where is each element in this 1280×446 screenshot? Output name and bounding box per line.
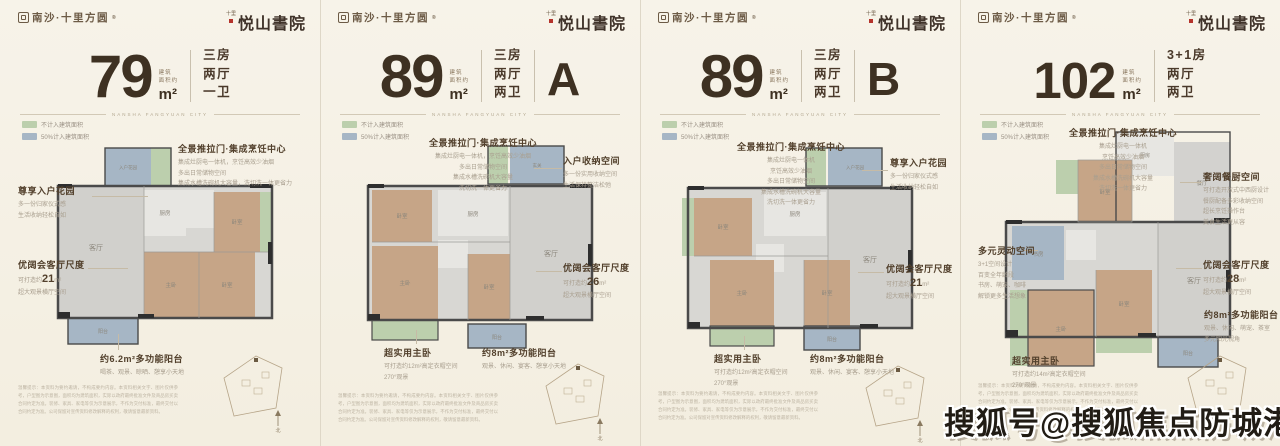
divider-line bbox=[980, 114, 1066, 115]
area-legend: 不计入建筑面积 50%计入建筑面积 bbox=[342, 120, 409, 141]
registered-mark: ® bbox=[752, 15, 757, 21]
divider-caption: NANSHA FANGYUAN CITY bbox=[752, 112, 848, 117]
unit-card-102: 南沙·十里方圆 ® 十里 悦山書院 102 建筑 面积约 m² 3+1房 两厅 … bbox=[960, 0, 1280, 446]
callout-lines: 观景、休闲、宴客、憩享小天地 bbox=[482, 362, 566, 373]
callout-lines: 超大观景横厅空间 bbox=[563, 291, 630, 302]
area-note-line2: 面积约 bbox=[769, 77, 789, 85]
legend-row-green: 不计入建筑面积 bbox=[982, 120, 1049, 129]
brand-logo-left: 南沙·十里方圆 ® bbox=[18, 10, 117, 25]
callout-lines: 可打造约14m²高定衣帽空间 270°观景 bbox=[1012, 370, 1086, 391]
card-header: 南沙·十里方圆 ® 十里 悦山書院 bbox=[658, 10, 946, 34]
callout-master: 超实用主卧 可打造约14m²高定衣帽空间 270°观景 bbox=[1012, 354, 1086, 391]
callout-storage: 入户收纳空间 多一份实用收纳空间 生活保持整洁松弛 bbox=[563, 154, 620, 191]
callout-title: 优阔会客厅尺度 bbox=[563, 261, 630, 274]
callout-title: 超实用主卧 bbox=[384, 346, 458, 359]
callout-connector bbox=[92, 196, 148, 197]
callout-lines: 集成灶厨电一体机，烹饪高效少油烟 多出日常储物空间 集成水槽洗碗机大容量，洗切洗… bbox=[178, 158, 292, 190]
callout-title: 尊享入户花园 bbox=[18, 184, 75, 197]
callout-lines: 超大观景横厅空间 bbox=[886, 292, 953, 303]
callout-lines: 超大观景横厅空间 bbox=[18, 288, 85, 299]
room-label-balcony: 阳台 bbox=[827, 336, 837, 343]
callout-kitchen: 全景推拉门·集成烹饪中心 集成灶厨电一体机，烹饪高效少油烟 多出日常储物空间 集… bbox=[178, 142, 292, 190]
callout-living: 优阔会客厅尺度 可打造约26m² 超大观景横厅空间 bbox=[563, 261, 630, 302]
brand-logo-prefix: 十里 bbox=[546, 12, 556, 23]
north-label: 北 bbox=[597, 435, 602, 442]
callout-balcony: 约8m²多功能阳台 观景、休闲、宴客、憩享小天地 bbox=[482, 346, 566, 373]
disclaimer-text: 温馨提示：本资料为要约邀请，不构成要约内容。本资料相关文字、图片仅供参考，户型图… bbox=[338, 392, 498, 425]
legend-label: 50%计入建筑面积 bbox=[681, 132, 729, 141]
room-label-bedroom: 卧室 bbox=[231, 218, 243, 226]
brand-logo-prefix: 十里 bbox=[866, 12, 876, 23]
brand-seal-icon bbox=[18, 12, 29, 23]
unit-area-note: 建筑 面积约 m² bbox=[1122, 69, 1142, 105]
callout-balcony: 约6.2m²多功能阳台 喝茶、观景、晾晒、憩享小天地 bbox=[100, 352, 184, 379]
callout-title: 约6.2m²多功能阳台 bbox=[100, 352, 184, 365]
callout-kitchen: 全景推拉门·集成烹饪中心 集成灶厨电一体机 烹饪高效少油烟 多出日常储物空间 集… bbox=[1038, 126, 1208, 195]
callout-balcony: 约8m²多功能阳台 观景、休闲、宴客、憩享小天地 bbox=[810, 352, 894, 379]
registered-mark: ® bbox=[1072, 15, 1077, 21]
callout-title: 全景推拉门·集成烹饪中心 bbox=[1038, 126, 1208, 139]
callout-value: 可打造约21m² bbox=[886, 277, 953, 289]
caption-divider: NANSHA FANGYUAN CITY bbox=[660, 112, 940, 117]
brand-logo-left-text: 南沙·十里方圆 bbox=[992, 10, 1069, 25]
callout-garden: 尊享入户花园 多一份归家仪式感 生活收纳轻松自如 bbox=[18, 184, 75, 221]
brand-logo-left: 南沙·十里方圆 ® bbox=[658, 10, 757, 25]
callout-title: 奢阔餐厨空间 bbox=[1203, 170, 1269, 183]
unit-layout: 三房 两厅 两卫 bbox=[814, 46, 842, 104]
unit-area-note: 建筑 面积约 m² bbox=[449, 69, 469, 105]
callout-lines: 3+1空间设计 百变全年龄段 书房、萌宠、咖啡 解锁更多生活想象 bbox=[978, 260, 1035, 302]
card-header: 南沙·十里方圆 ® 十里 悦山書院 bbox=[978, 10, 1266, 34]
callout-title: 全景推拉门·集成烹饪中心 bbox=[398, 136, 568, 149]
spec-divider bbox=[481, 50, 482, 102]
callout-lines: 多一份归家仪式感 生活收纳轻松自如 bbox=[18, 200, 75, 221]
brand-logo-prefix: 十里 bbox=[226, 12, 236, 23]
value-prefix: 可打造约 bbox=[1203, 278, 1227, 284]
room-label-kitchen: 厨房 bbox=[467, 210, 479, 218]
callout-title: 超实用主卧 bbox=[1012, 354, 1086, 367]
callout-title: 约8m²多功能阳台 bbox=[482, 346, 566, 359]
callout-title: 优阔会客厅尺度 bbox=[1203, 258, 1270, 271]
divider-line bbox=[214, 114, 300, 115]
legend-label: 不计入建筑面积 bbox=[361, 120, 403, 129]
legend-swatch-green bbox=[662, 121, 677, 128]
red-seal-icon bbox=[869, 19, 874, 24]
legend-swatch-blue bbox=[22, 133, 37, 140]
disclaimer-text: 温馨提示：本资料为要约邀请，不构成要约内容。本资料相关文字、图片仅供参考，户型图… bbox=[658, 390, 818, 423]
callout-lines: 喝茶、观景、晾晒、憩享小天地 bbox=[100, 368, 184, 379]
north-label: 北 bbox=[917, 437, 922, 444]
area-legend: 不计入建筑面积 50%计入建筑面积 bbox=[982, 120, 1049, 141]
area-note-line2: 面积约 bbox=[159, 77, 179, 85]
callout-flex: 多元灵动空间 3+1空间设计 百变全年龄段 书房、萌宠、咖啡 解锁更多生活想象 bbox=[978, 244, 1035, 302]
callout-master: 超实用主卧 可打造约12m²高定衣帽空间 270°观景 bbox=[384, 346, 458, 383]
unit-layout: 三房 两厅 两卫 bbox=[494, 46, 522, 104]
north-label: 北 bbox=[275, 427, 280, 434]
legend-row-blue: 50%计入建筑面积 bbox=[662, 132, 729, 141]
callout-lines: 超大观景横厅空间 bbox=[1203, 288, 1270, 299]
legend-row-blue: 50%计入建筑面积 bbox=[22, 132, 89, 141]
area-legend: 不计入建筑面积 50%计入建筑面积 bbox=[662, 120, 729, 141]
unit-spec-header: 89 建筑 面积约 m² 三房 两厅 两卫 A bbox=[320, 40, 640, 104]
spec-divider bbox=[534, 50, 535, 102]
callout-lines: 观景、休闲、萌宠、茶室 多元阳光视角 bbox=[1204, 324, 1279, 345]
card-header: 南沙·十里方圆 ® 十里 悦山書院 bbox=[18, 10, 306, 34]
watermark-text: 搜狐号@搜狐焦点防城港站 bbox=[944, 398, 1280, 443]
divider-line bbox=[340, 114, 426, 115]
legend-label: 不计入建筑面积 bbox=[681, 120, 723, 129]
unit-spec-header: 102 建筑 面积约 m² 3+1房 两厅 两卫 bbox=[960, 40, 1280, 104]
legend-label: 50%计入建筑面积 bbox=[361, 132, 409, 141]
brand-logo-left-text: 南沙·十里方圆 bbox=[672, 10, 749, 25]
spec-divider bbox=[854, 50, 855, 102]
value-prefix: 可打造约 bbox=[563, 281, 587, 287]
room-label-garden: 入户花园 bbox=[119, 164, 137, 171]
brand-logo-left: 南沙·十里方圆 ® bbox=[338, 10, 437, 25]
callout-connector bbox=[88, 268, 128, 269]
brand-logo-prefix: 十里 bbox=[1186, 12, 1196, 23]
spec-divider bbox=[801, 50, 802, 102]
callout-value: 可打造约26m² bbox=[563, 276, 630, 288]
callout-title: 超实用主卧 bbox=[714, 352, 788, 365]
callout-kitchen: 全景推拉门·集成烹饪中心 集成灶厨电一体机，烹饪高效少油烟 多出日常储物空间 集… bbox=[398, 136, 568, 194]
area-note-line2: 面积约 bbox=[1122, 77, 1142, 85]
unit-type-letter: A bbox=[547, 59, 580, 104]
callout-dining: 奢阔餐厨空间 可打造开放式中西厨设计 餐厨配备多彩收纳空间 超长烹饪操作台 美食… bbox=[1203, 170, 1269, 228]
unit-area: 89 bbox=[380, 51, 443, 104]
room-label-living: 客厅 bbox=[544, 249, 558, 258]
red-seal-icon bbox=[549, 19, 554, 24]
site-plan: 北 bbox=[222, 352, 286, 434]
room-label-master: 主卧 bbox=[165, 281, 177, 289]
brand-logo-prefix-text: 十里 bbox=[226, 12, 236, 18]
room-label-kitchen: 厨房 bbox=[789, 210, 801, 218]
callout-connector bbox=[536, 271, 562, 272]
unit-area: 102 bbox=[1033, 59, 1115, 104]
area-unit: m² bbox=[159, 86, 177, 103]
unit-area-note: 建筑 面积约 m² bbox=[159, 69, 179, 105]
room-label-bedroom: 卧室 bbox=[821, 289, 833, 297]
unit-area: 89 bbox=[700, 51, 763, 104]
room-label-bedroom: 卧室 bbox=[396, 212, 408, 220]
red-seal-icon bbox=[1189, 19, 1194, 24]
area-unit: m² bbox=[1122, 86, 1140, 103]
legend-swatch-blue bbox=[342, 133, 357, 140]
unit-card-89a: 南沙·十里方圆 ® 十里 悦山書院 89 建筑 面积约 m² 三房 两厅 两卫 … bbox=[320, 0, 640, 446]
area-legend: 不计入建筑面积 50%计入建筑面积 bbox=[22, 120, 89, 141]
callout-lines: 可打造约12m²高定衣帽空间 270°观景 bbox=[714, 368, 788, 389]
card-divider bbox=[640, 0, 641, 446]
legend-swatch-green bbox=[22, 121, 37, 128]
area-unit: m² bbox=[769, 86, 787, 103]
unit-spec-header: 79 建筑 面积约 m² 三房 两厅 一卫 bbox=[0, 40, 320, 104]
callout-lines: 观景、休闲、宴客、憩享小天地 bbox=[810, 368, 894, 379]
legend-label: 50%计入建筑面积 bbox=[41, 132, 89, 141]
area-note-line2: 面积约 bbox=[449, 77, 469, 85]
brand-logo-left-text: 南沙·十里方圆 bbox=[32, 10, 109, 25]
divider-line bbox=[660, 114, 746, 115]
value-number: 28 bbox=[1227, 273, 1239, 285]
value-unit: m² bbox=[1239, 278, 1246, 284]
room-label-balcony: 阳台 bbox=[98, 328, 108, 335]
unit-type-letter: B bbox=[867, 59, 900, 104]
room-label-living: 客厅 bbox=[863, 255, 877, 264]
brand-logo-prefix-text: 十里 bbox=[1186, 12, 1196, 18]
caption-divider: NANSHA FANGYUAN CITY bbox=[340, 112, 620, 117]
brand-seal-icon bbox=[658, 12, 669, 23]
caption-divider: NANSHA FANGYUAN CITY bbox=[980, 112, 1260, 117]
callout-connector bbox=[744, 336, 745, 350]
brand-logo-right: 十里 悦山書院 bbox=[866, 10, 946, 34]
divider-line bbox=[20, 114, 106, 115]
brand-logo-right: 十里 悦山書院 bbox=[226, 10, 306, 34]
unit-layout: 三房 两厅 一卫 bbox=[203, 46, 231, 104]
callout-title: 优阔会客厅尺度 bbox=[18, 258, 85, 271]
room-label-kitchen: 厨房 bbox=[159, 209, 171, 217]
unit-spec-header: 89 建筑 面积约 m² 三房 两厅 两卫 B bbox=[640, 40, 960, 104]
card-header: 南沙·十里方圆 ® 十里 悦山書院 bbox=[338, 10, 626, 34]
brand-logo-right-text: 悦山書院 bbox=[558, 10, 626, 34]
area-unit: m² bbox=[449, 86, 467, 103]
room-label-master: 主卧 bbox=[736, 289, 748, 297]
callout-title: 入户收纳空间 bbox=[563, 154, 620, 167]
disclaimer-text: 温馨提示：本资料为要约邀请，不构成要约内容。本资料相关文字、图片仅供参考，户型图… bbox=[18, 384, 178, 417]
legend-row-green: 不计入建筑面积 bbox=[662, 120, 729, 129]
callout-value: 可打造约28m² bbox=[1203, 273, 1270, 285]
spec-divider bbox=[190, 50, 191, 102]
divider-line bbox=[1174, 114, 1260, 115]
unit-card-89b: 南沙·十里方圆 ® 十里 悦山書院 89 建筑 面积约 m² 三房 两厅 两卫 … bbox=[640, 0, 960, 446]
callout-title: 尊享入户花园 bbox=[890, 156, 947, 169]
divider-caption: NANSHA FANGYUAN CITY bbox=[432, 112, 528, 117]
legend-label: 不计入建筑面积 bbox=[41, 120, 83, 129]
legend-label: 不计入建筑面积 bbox=[1001, 120, 1043, 129]
area-note-line1: 建筑 bbox=[769, 69, 782, 77]
legend-swatch-blue bbox=[982, 133, 997, 140]
room-label-bedroom: 卧室 bbox=[483, 283, 495, 291]
registered-mark: ® bbox=[112, 15, 117, 21]
legend-row-green: 不计入建筑面积 bbox=[342, 120, 409, 129]
legend-row-blue: 50%计入建筑面积 bbox=[982, 132, 1049, 141]
callout-title: 约8m²多功能阳台 bbox=[810, 352, 894, 365]
brand-logo-right: 十里 悦山書院 bbox=[546, 10, 626, 34]
callout-living: 优阔会客厅尺度 可打造约21m² 超大观景横厅空间 bbox=[886, 262, 953, 303]
legend-swatch-blue bbox=[662, 133, 677, 140]
brand-logo-right-text: 悦山書院 bbox=[238, 10, 306, 34]
red-seal-icon bbox=[229, 19, 234, 24]
brand-seal-icon bbox=[338, 12, 349, 23]
unit-card-79: 南沙·十里方圆 ® 十里 悦山書院 79 建筑 面积约 m² 三房 两厅 一卫 … bbox=[0, 0, 320, 446]
room-label-living: 客厅 bbox=[89, 243, 103, 252]
brand-logo-prefix-text: 十里 bbox=[866, 12, 876, 18]
divider-caption: NANSHA FANGYUAN CITY bbox=[112, 112, 208, 117]
callout-living: 优阔会客厅尺度 可打造约28m² 超大观景横厅空间 bbox=[1203, 258, 1270, 299]
registered-mark: ® bbox=[432, 15, 437, 21]
callout-connector bbox=[1176, 268, 1202, 269]
unit-layout: 3+1房 两厅 两卫 bbox=[1167, 46, 1207, 104]
value-number: 26 bbox=[587, 276, 599, 288]
area-note-line1: 建筑 bbox=[1122, 69, 1135, 77]
room-label-bedroom: 卧室 bbox=[717, 223, 729, 231]
brand-logo-left: 南沙·十里方圆 ® bbox=[978, 10, 1077, 25]
callout-connector bbox=[416, 330, 417, 344]
callout-lines: 集成灶厨电一体机，烹饪高效少油烟 多出日常储物空间 集成水槽洗碗机大容量 洗切洗… bbox=[398, 152, 568, 194]
legend-label: 50%计入建筑面积 bbox=[1001, 132, 1049, 141]
value-number: 21 bbox=[42, 273, 54, 285]
area-note-line1: 建筑 bbox=[449, 69, 462, 77]
value-unit: m² bbox=[54, 278, 61, 284]
brand-logo-prefix-text: 十里 bbox=[546, 12, 556, 18]
callout-balcony: 约8m²多功能阳台 观景、休闲、萌宠、茶室 多元阳光视角 bbox=[1204, 308, 1279, 345]
callout-lines: 可打造开放式中西厨设计 餐厨配备多彩收纳空间 超长烹饪操作台 美食生活更从容 bbox=[1203, 186, 1269, 228]
room-label-balcony: 阳台 bbox=[492, 334, 502, 341]
room-label-master: 主卧 bbox=[399, 279, 411, 287]
divider-caption: NANSHA FANGYUAN CITY bbox=[1072, 112, 1168, 117]
caption-divider: NANSHA FANGYUAN CITY bbox=[20, 112, 300, 117]
callout-value: 可打造约21m² bbox=[18, 273, 85, 285]
brand-logo-left-text: 南沙·十里方圆 bbox=[352, 10, 429, 25]
legend-swatch-green bbox=[342, 121, 357, 128]
room-label-bedroom: 卧室 bbox=[221, 281, 233, 289]
brand-seal-icon bbox=[978, 12, 989, 23]
callout-living: 优阔会客厅尺度 可打造约21m² 超大观景横厅空间 bbox=[18, 258, 85, 299]
unit-area-note: 建筑 面积约 m² bbox=[769, 69, 789, 105]
legend-swatch-green bbox=[982, 121, 997, 128]
value-unit: m² bbox=[599, 281, 606, 287]
value-prefix: 可打造约 bbox=[18, 278, 42, 284]
brand-logo-right-text: 悦山書院 bbox=[1198, 10, 1266, 34]
value-prefix: 可打造约 bbox=[886, 282, 910, 288]
callout-garden: 尊享入户花园 多一份归家仪式感 生活收纳轻松自如 bbox=[890, 156, 947, 193]
unit-area: 79 bbox=[89, 51, 152, 104]
callout-lines: 多一份实用收纳空间 生活保持整洁松弛 bbox=[563, 170, 620, 191]
callout-kitchen: 全景推拉门·集成烹饪中心 集成灶厨电一体机 烹饪高效少油烟 多出日常储物空间 集… bbox=[706, 140, 876, 209]
area-note-line1: 建筑 bbox=[159, 69, 172, 77]
callout-lines: 集成灶厨电一体机 烹饪高效少油烟 多出日常储物空间 集成水槽洗碗机大容量 洗切洗… bbox=[706, 156, 876, 209]
card-divider bbox=[960, 0, 961, 446]
callout-title: 全景推拉门·集成烹饪中心 bbox=[178, 142, 292, 155]
callout-lines: 可打造约12m²高定衣帽空间 270°观景 bbox=[384, 362, 458, 383]
divider-line bbox=[534, 114, 620, 115]
legend-row-blue: 50%计入建筑面积 bbox=[342, 132, 409, 141]
flyer-canvas: 南沙·十里方圆 ® 十里 悦山書院 79 建筑 面积约 m² 三房 两厅 一卫 … bbox=[0, 0, 1280, 446]
card-divider bbox=[320, 0, 321, 446]
callout-title: 优阔会客厅尺度 bbox=[886, 262, 953, 275]
legend-row-green: 不计入建筑面积 bbox=[22, 120, 89, 129]
callout-connector bbox=[858, 272, 884, 273]
brand-logo-right: 十里 悦山書院 bbox=[1186, 10, 1266, 34]
value-unit: m² bbox=[922, 282, 929, 288]
brand-logo-right-text: 悦山書院 bbox=[878, 10, 946, 34]
callout-connector bbox=[118, 334, 119, 350]
room-label-living: 客厅 bbox=[1187, 276, 1201, 285]
room-label-master: 主卧 bbox=[1055, 325, 1067, 333]
callout-master: 超实用主卧 可打造约12m²高定衣帽空间 270°观景 bbox=[714, 352, 788, 389]
callout-title: 约8m²多功能阳台 bbox=[1204, 308, 1279, 321]
divider-line bbox=[854, 114, 940, 115]
value-number: 21 bbox=[910, 277, 922, 289]
room-label-bedroom: 卧室 bbox=[1118, 300, 1130, 308]
callout-title: 多元灵动空间 bbox=[978, 244, 1035, 257]
callout-title: 全景推拉门·集成烹饪中心 bbox=[706, 140, 876, 153]
callout-lines: 多一份归家仪式感 生活收纳轻松自如 bbox=[890, 172, 947, 193]
spec-divider bbox=[1154, 50, 1155, 102]
callout-lines: 集成灶厨电一体机 烹饪高效少油烟 多出日常储物空间 集成水槽洗碗机大容量 洗切洗… bbox=[1038, 142, 1208, 195]
